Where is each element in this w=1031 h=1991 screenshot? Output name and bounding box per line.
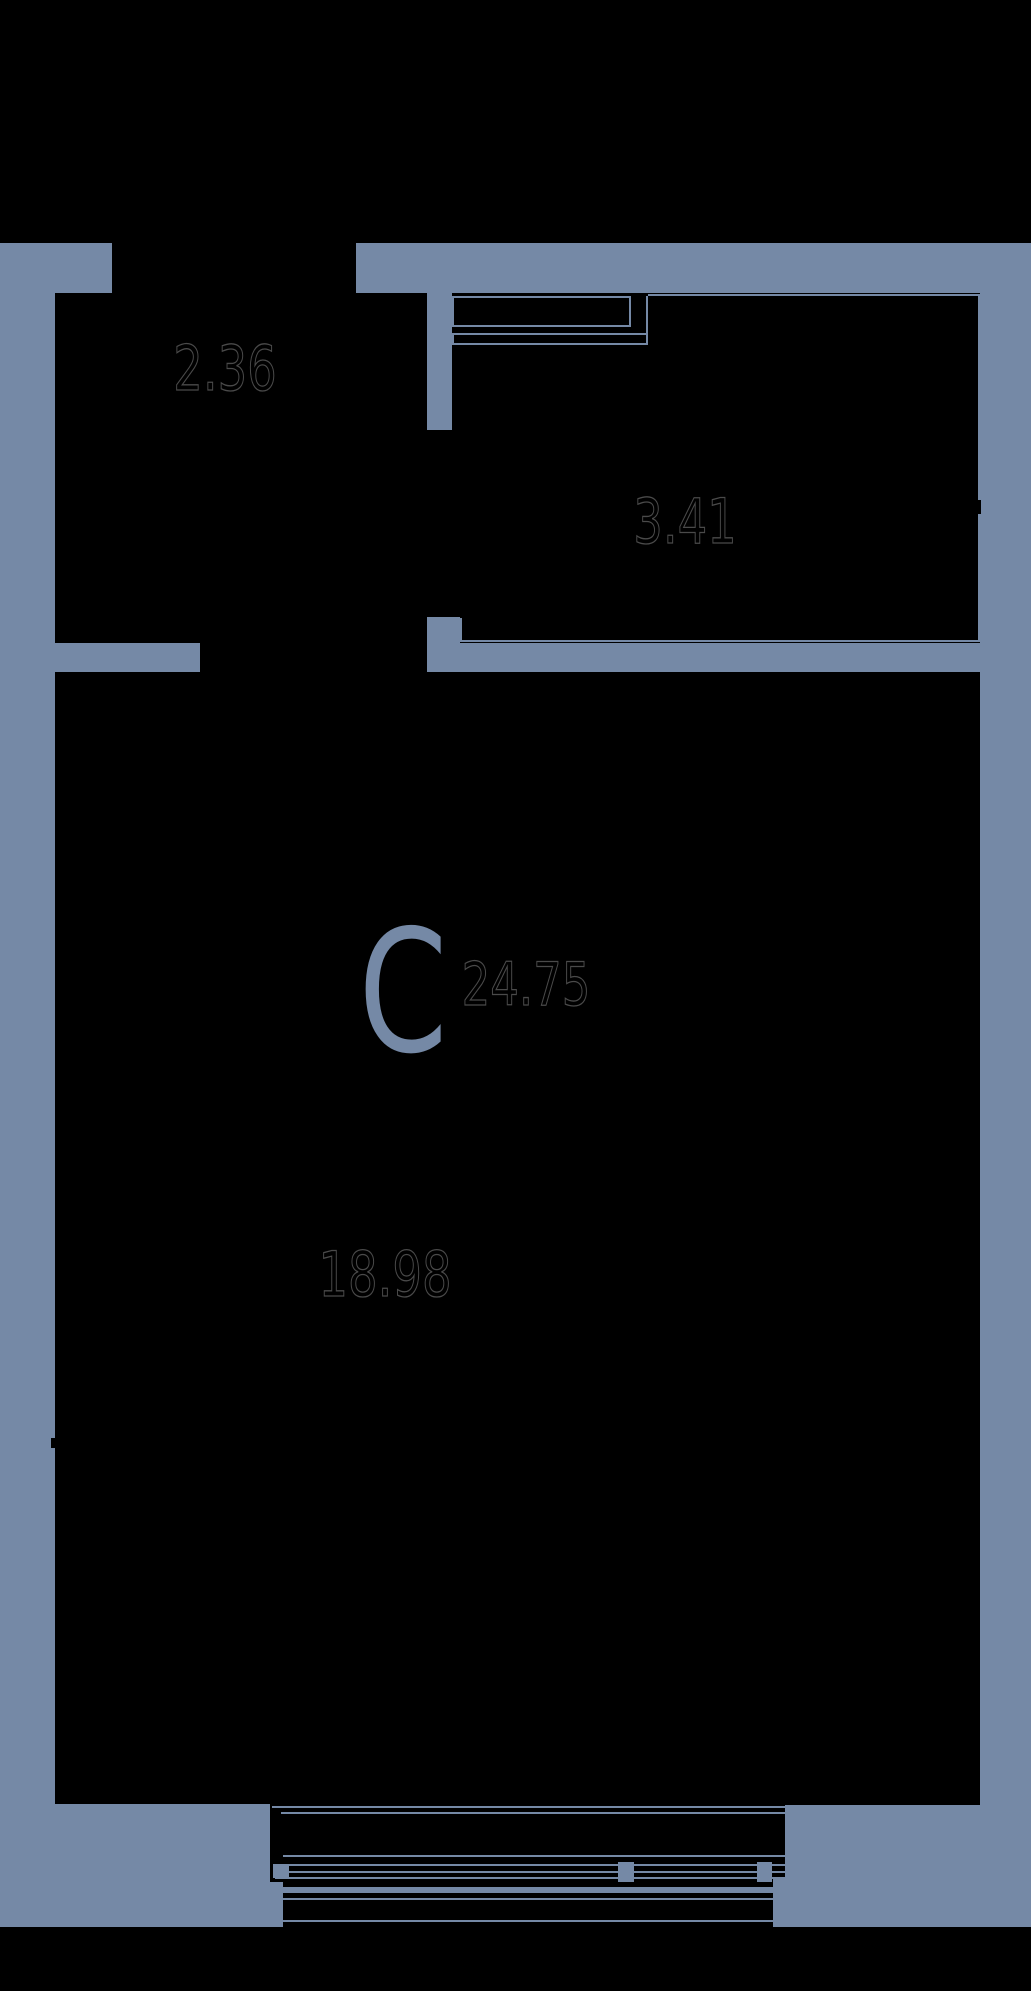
- floor-plan: 2.36 3.41 18.98 С 24.75: [0, 0, 1031, 1991]
- area-label-living-room: 18.98: [318, 1244, 451, 1306]
- window-frame-line-f: [283, 1898, 785, 1900]
- washroom-top-face-line: [648, 294, 980, 296]
- right-exterior-wall: [980, 243, 1031, 1805]
- closet-outline-lower: [452, 333, 648, 345]
- total-area-label: 24.75: [462, 955, 591, 1015]
- left-exterior-wall: [0, 243, 55, 1804]
- loggia-inner-line-1: [272, 1806, 785, 1808]
- entrance-jamb-right: [356, 243, 358, 293]
- interior-wall-left: [55, 643, 200, 672]
- washroom-bottom-face-line: [460, 640, 980, 642]
- window-mullion-right: [757, 1862, 772, 1882]
- washroom-right-face-line: [978, 294, 980, 642]
- window-frame-line-e: [283, 1887, 785, 1893]
- interior-wall-right: [460, 643, 982, 672]
- area-label-hallway: 2.36: [173, 338, 277, 400]
- top-wall-right-segment: [358, 243, 1031, 293]
- window-frame-line-c: [275, 1871, 785, 1873]
- hallway-partition-stub: [427, 293, 452, 430]
- window-junction-left: [273, 1864, 289, 1878]
- loggia-inner-line-2: [281, 1812, 785, 1814]
- window-outer-sill-line: [270, 1920, 785, 1922]
- entrance-jamb-left: [110, 243, 112, 293]
- window-frame-line-a: [283, 1855, 785, 1857]
- closet-divider-line: [646, 296, 648, 345]
- left-wall-tick-notch: [51, 1438, 55, 1448]
- window-frame-line-d: [275, 1877, 785, 1879]
- window-frame-line-b: [275, 1864, 785, 1866]
- bottom-left-wall-block: [0, 1804, 270, 1927]
- washroom-face-line-gap: [977, 500, 981, 514]
- bottom-right-wall-block: [785, 1805, 1031, 1927]
- studio-type-letter: С: [358, 908, 447, 1078]
- closet-outline-upper: [452, 296, 631, 327]
- window-mullion-middle: [618, 1862, 634, 1882]
- area-label-washroom: 3.41: [633, 491, 737, 553]
- washroom-door-frame: [452, 618, 462, 642]
